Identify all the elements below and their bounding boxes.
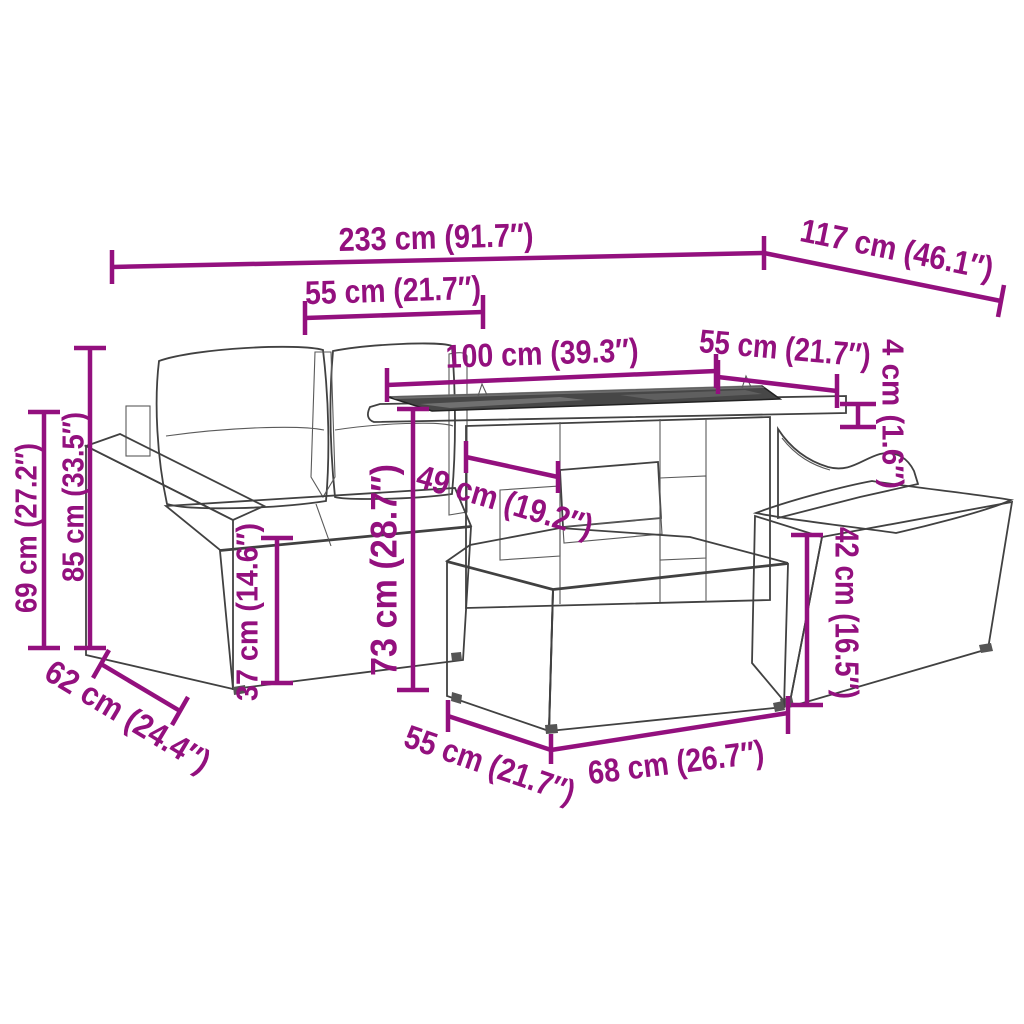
dim-label-4cm: 4 cm (1.6″): [876, 339, 911, 489]
dim-label-42cm: 42 cm (16.5″): [829, 527, 866, 699]
ottoman-front: [447, 528, 788, 734]
furniture-dimension-drawing: 233 cm (91.7″) 117 cm (46.1″) 55 cm (21.…: [0, 0, 1024, 1024]
dim-tick-117cm: [998, 285, 1004, 317]
dim-line-100cm: [387, 371, 716, 385]
dim-label-100cm: 100 cm (39.3″): [445, 331, 639, 375]
front-ottoman-feet: [451, 692, 785, 734]
armrest-top: [86, 434, 264, 520]
sofa-back-post: [126, 406, 150, 456]
dimension-annotations: 233 cm (91.7″) 117 cm (46.1″) 55 cm (21.…: [9, 211, 1005, 810]
dim-label-37cm: 37 cm (14.6″): [230, 523, 265, 701]
dim-label-69cm: 69 cm (27.2″): [9, 443, 44, 613]
dim-label-49cm: 49 cm (19.2″): [412, 457, 597, 544]
dim-label-233cm: 233 cm (91.7″): [338, 216, 534, 258]
front-ottoman-corner: [549, 590, 553, 731]
dim-label-73cm: 73 cm (28.7″): [364, 464, 405, 676]
dim-label-55cm-right: 55 cm (21.7″): [698, 322, 873, 374]
ottoman-feet: [780, 643, 993, 708]
dim-label-55cm-top: 55 cm (21.7″): [304, 269, 481, 312]
pillow-crease: [335, 423, 453, 430]
dim-label-117cm: 117 cm (46.1″): [797, 211, 996, 286]
dim-label-85cm: 85 cm (33.5″): [56, 412, 91, 582]
front-ottoman-side: [447, 562, 553, 731]
dim-label-62cm: 62 cm (24.4″): [39, 652, 217, 780]
dimension-diagram: 233 cm (91.7″) 117 cm (46.1″) 55 cm (21.…: [0, 0, 1024, 1024]
pedestal-panel-right: [660, 476, 706, 560]
front-ottoman-top: [447, 528, 788, 589]
dim-line-55cm-top: [305, 312, 483, 318]
pillow-crease: [166, 427, 324, 436]
